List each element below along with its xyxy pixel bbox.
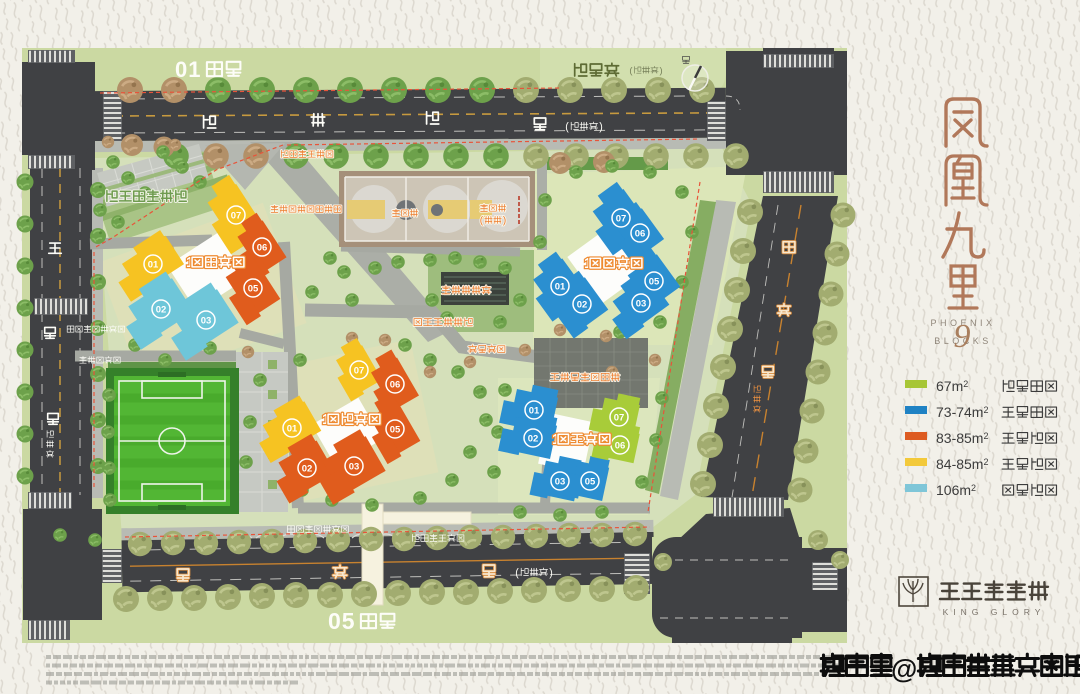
- svg-text:84-85m2: 84-85m2: [936, 456, 988, 472]
- svg-text:02: 02: [156, 304, 167, 315]
- svg-text:01: 01: [287, 423, 298, 434]
- svg-text:05: 05: [390, 424, 401, 435]
- svg-text:05: 05: [585, 476, 596, 487]
- svg-text:06: 06: [615, 440, 626, 451]
- svg-text:(: (: [565, 121, 569, 133]
- svg-text:01: 01: [529, 405, 540, 416]
- svg-text:): ): [660, 64, 663, 75]
- svg-text:(: (: [515, 567, 519, 579]
- svg-text:05: 05: [328, 608, 356, 634]
- svg-text:73-74m2: 73-74m2: [936, 404, 988, 420]
- svg-text:): ): [503, 216, 506, 227]
- svg-text:07: 07: [614, 412, 625, 423]
- svg-text:9: 9: [954, 318, 971, 355]
- svg-text:07: 07: [616, 213, 627, 224]
- svg-text:83-85m2: 83-85m2: [936, 430, 988, 446]
- svg-text:06: 06: [390, 379, 401, 390]
- svg-text:07: 07: [231, 210, 242, 221]
- svg-text:05: 05: [248, 283, 259, 294]
- svg-text:03: 03: [555, 476, 566, 487]
- svg-text:KING GLORY: KING GLORY: [943, 607, 1046, 617]
- svg-text:07: 07: [354, 365, 365, 376]
- svg-text:): ): [549, 567, 553, 579]
- svg-text:03: 03: [201, 315, 212, 326]
- svg-text:05: 05: [649, 276, 660, 287]
- svg-text:02: 02: [577, 299, 588, 310]
- svg-text:02: 02: [302, 463, 313, 474]
- svg-text:106m2: 106m2: [936, 482, 976, 498]
- svg-text:): ): [599, 121, 603, 133]
- svg-text:01: 01: [148, 259, 159, 270]
- svg-text:03: 03: [636, 298, 647, 309]
- svg-text:01: 01: [555, 281, 566, 292]
- svg-text:06: 06: [257, 242, 268, 253]
- svg-text:01: 01: [175, 57, 201, 82]
- svg-text:02: 02: [528, 433, 539, 444]
- svg-text:03: 03: [349, 461, 360, 472]
- svg-text:06: 06: [635, 228, 646, 239]
- svg-text:@: @: [891, 654, 917, 684]
